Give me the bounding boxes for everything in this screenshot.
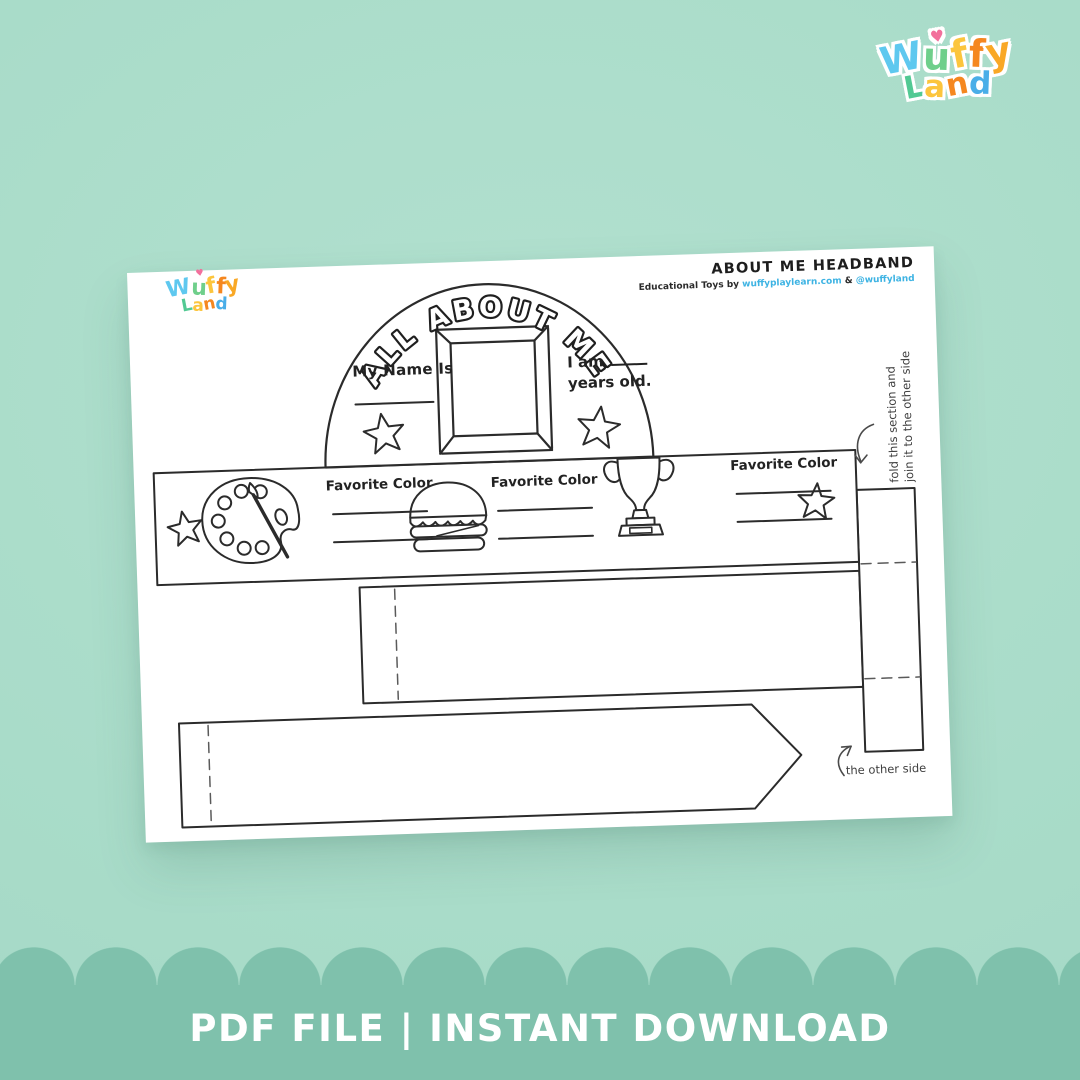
scalloped-edge — [0, 947, 1080, 985]
fold-tab-strip — [857, 488, 924, 752]
age-suffix: years old. — [568, 371, 652, 395]
age-block: I am years old. — [567, 350, 652, 395]
headband-template-art: ALL ABOUT ME — [127, 246, 952, 842]
fold-instruction-note: fold this section and join it to the oth… — [882, 312, 918, 483]
age-line-1: I am — [567, 350, 651, 374]
fold-arrow-icon — [854, 424, 875, 463]
other-side-note: the other side — [846, 761, 927, 779]
banner-text: PDF FILE | INSTANT DOWNLOAD — [0, 1007, 1080, 1050]
product-mockup-canvas: Wu♥ffy Land Wu♥ffy Land ABOUT ME HEADBAN… — [0, 0, 1080, 1080]
name-label: My Name Is — [352, 359, 454, 380]
burger-icon — [409, 481, 487, 551]
headband-strip-bottom-arrow — [179, 703, 803, 828]
age-prefix: I am — [567, 352, 604, 371]
headband-strip-middle — [360, 571, 864, 704]
wordmark-letter: d — [969, 68, 993, 100]
age-write-line — [610, 351, 646, 366]
heart-icon: ♥ — [929, 27, 947, 45]
paint-palette-icon — [201, 476, 301, 564]
picture-frame — [436, 326, 552, 454]
printable-sheet: Wu♥ffy Land ABOUT ME HEADBAND Educationa… — [127, 246, 952, 842]
wuffyland-logo: Wu♥ffy Land — [870, 31, 1024, 106]
